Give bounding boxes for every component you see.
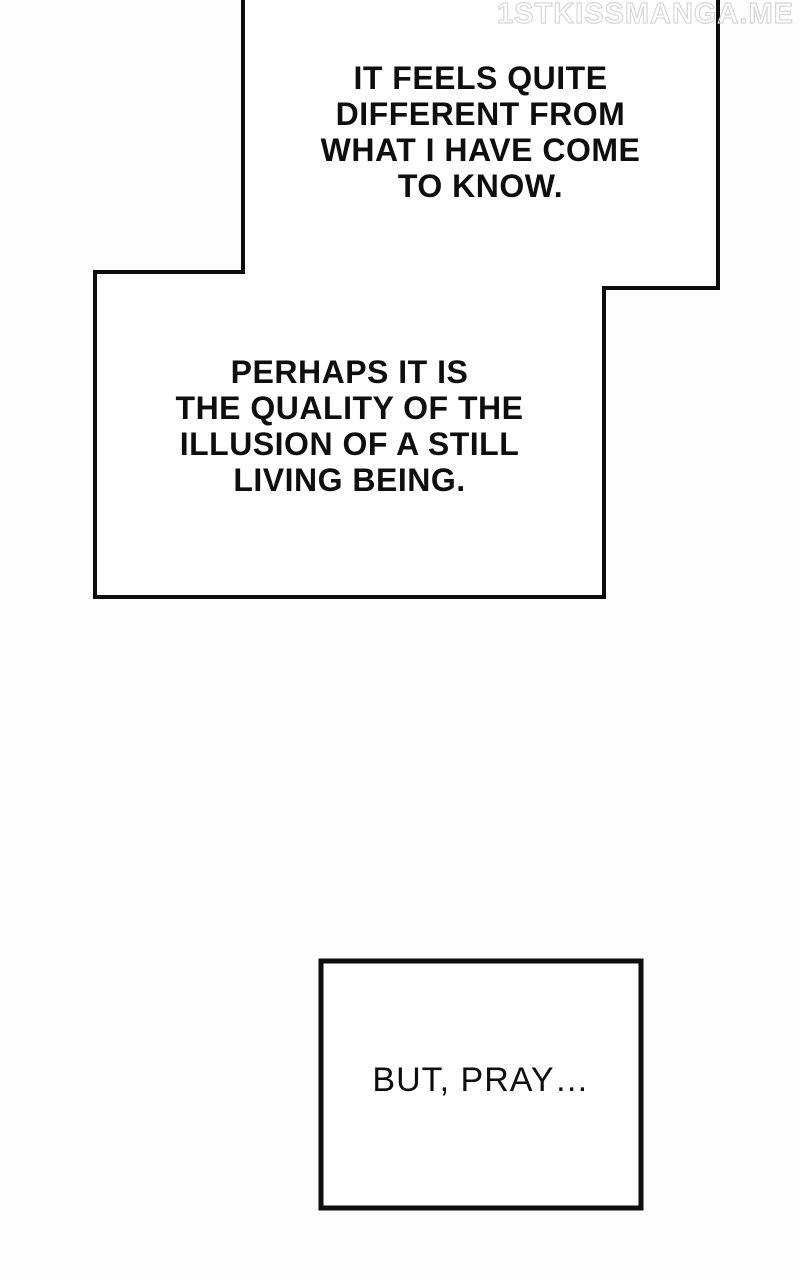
dialogue-text-upper: IT FEELS QUITE DIFFERENT FROM WHAT I HAV… bbox=[243, 60, 718, 204]
manga-page: 1STKISSMANGA.ME IT FEELS QUITE DIFFERENT… bbox=[0, 0, 800, 1280]
dialogue-text-bottom-box: BUT, PRAY… bbox=[321, 1060, 641, 1100]
site-watermark: 1STKISSMANGA.ME bbox=[497, 0, 794, 31]
dialogue-text-lower: PERHAPS IT IS THE QUALITY OF THE ILLUSIO… bbox=[95, 354, 604, 498]
